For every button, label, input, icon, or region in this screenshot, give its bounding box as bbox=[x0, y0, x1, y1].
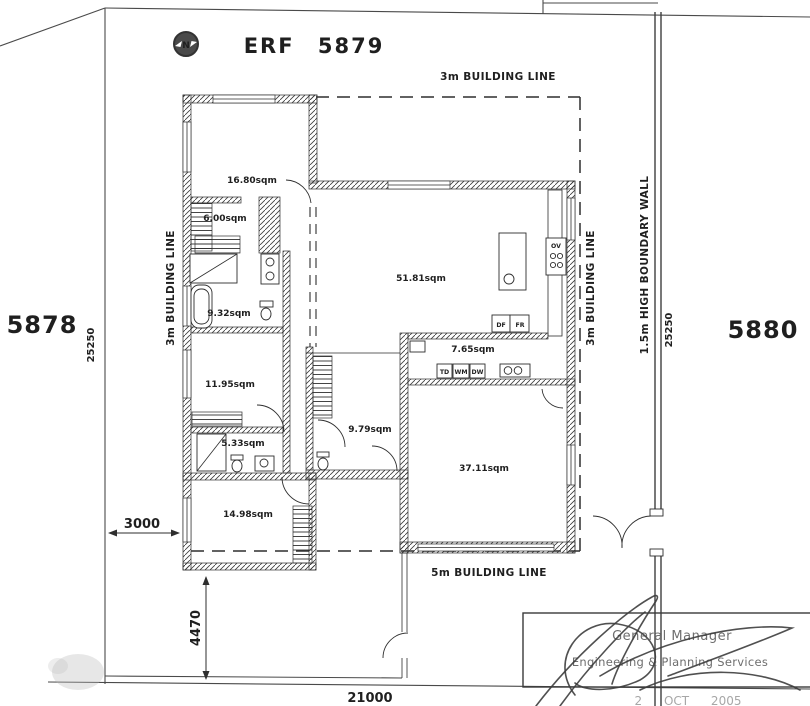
deep-freeze: DF bbox=[492, 315, 510, 332]
bottom-boundary-line bbox=[48, 682, 810, 689]
room-area-label: 37.11sqm bbox=[459, 464, 509, 474]
left-building-line-label: 3m BUILDING LINE bbox=[165, 230, 177, 346]
stamp-title: General Manager bbox=[612, 629, 732, 644]
fridge: FR bbox=[510, 315, 529, 332]
right-boundary-dimension: 25250 bbox=[664, 313, 675, 348]
left-boundary-dimension: 25250 bbox=[86, 328, 97, 363]
door-swing bbox=[372, 446, 397, 471]
front-boundary-dimension-label: 21000 bbox=[347, 691, 392, 706]
room-area-label: 51.81sqm bbox=[396, 274, 446, 284]
toilet bbox=[231, 455, 243, 472]
room-labels: 16.80sqm 6.00sqm 9.32sqm 11.95sqm 5.33sq… bbox=[203, 176, 509, 520]
vanity bbox=[261, 254, 279, 284]
oven-unit: OV bbox=[546, 238, 566, 275]
window bbox=[183, 122, 191, 172]
room-area-label: 7.65sqm bbox=[451, 345, 494, 355]
staircase bbox=[313, 356, 332, 418]
scullery-basin bbox=[410, 341, 425, 352]
tumble-dryer: TD bbox=[437, 364, 452, 378]
fridge-label: FR bbox=[516, 322, 525, 329]
gate-post bbox=[650, 509, 663, 516]
bathtub bbox=[191, 285, 212, 328]
site-plan-canvas: OV DF FR TD WM DW bbox=[0, 0, 810, 706]
bottom-inner-line bbox=[105, 676, 402, 678]
title-block: ERF 5879 N bbox=[174, 32, 384, 58]
boundary-wall-label: 1.5m HIGH BOUNDARY WALL bbox=[639, 176, 651, 355]
yard-wall bbox=[402, 553, 407, 678]
north-letter: N bbox=[182, 41, 190, 51]
dishwasher-label: DW bbox=[472, 369, 484, 376]
closet-desk bbox=[190, 254, 237, 283]
driveway-dimension-label: 4470 bbox=[189, 610, 204, 646]
pedestrian-gate bbox=[383, 633, 408, 658]
top-left-street-line bbox=[0, 8, 105, 46]
basin bbox=[255, 456, 274, 471]
setback-dimension-label: 3000 bbox=[124, 517, 160, 532]
top-boundary-line bbox=[105, 8, 810, 17]
tumble-dryer-label: TD bbox=[440, 369, 449, 376]
signature bbox=[536, 596, 800, 706]
front-building-line-label: 5m BUILDING LINE bbox=[431, 567, 547, 579]
door-swing bbox=[282, 477, 309, 504]
window bbox=[183, 350, 191, 398]
door-swing bbox=[286, 180, 311, 203]
neighbor-erf-left: 5878 bbox=[7, 311, 78, 339]
deep-freeze-label: DF bbox=[496, 322, 505, 329]
dishwasher: DW bbox=[470, 364, 485, 378]
room-area-label: 9.32sqm bbox=[207, 309, 250, 319]
door-swing bbox=[318, 420, 345, 447]
top-right-cutoff-box bbox=[543, 0, 658, 14]
oven-label: OV bbox=[551, 243, 561, 250]
garage-door bbox=[418, 544, 554, 551]
toilet bbox=[317, 452, 329, 470]
room-area-label: 14.98sqm bbox=[223, 510, 273, 520]
washing-machine-label: WM bbox=[455, 369, 468, 376]
room-area-label: 9.79sqm bbox=[348, 425, 391, 435]
toilet bbox=[260, 301, 273, 320]
window bbox=[567, 198, 575, 240]
double-sink bbox=[500, 364, 530, 377]
room-area-label: 16.80sqm bbox=[227, 176, 277, 186]
washing-machine: WM bbox=[453, 364, 469, 378]
right-building-line-label: 3m BUILDING LINE bbox=[585, 230, 597, 346]
window bbox=[567, 445, 575, 485]
garage-person-door bbox=[542, 389, 563, 408]
room-area-label: 11.95sqm bbox=[205, 380, 255, 390]
kitchen-island bbox=[499, 233, 526, 290]
neighbor-erf-right: 5880 bbox=[728, 316, 799, 344]
gate-post bbox=[650, 549, 663, 556]
driveway-gates bbox=[593, 516, 651, 548]
site-plan-page: OV DF FR TD WM DW bbox=[0, 0, 810, 706]
scan-smudge bbox=[48, 654, 104, 690]
window bbox=[388, 181, 450, 189]
room-area-label: 6.00sqm bbox=[203, 214, 246, 224]
north-arrow-icon: N bbox=[174, 32, 198, 56]
window bbox=[183, 498, 191, 542]
stamp-subtitle: Engineering & Planning Services bbox=[572, 655, 768, 669]
erf-title: ERF 5879 bbox=[244, 34, 385, 58]
stamp-date: 2 OCT 2005 bbox=[635, 694, 742, 706]
inner-building-line-dash bbox=[310, 207, 316, 347]
top-building-line-label: 3m BUILDING LINE bbox=[440, 71, 556, 83]
window bbox=[213, 95, 275, 103]
room-area-label: 5.33sqm bbox=[221, 439, 264, 449]
window bbox=[183, 286, 191, 326]
staircase bbox=[293, 506, 312, 563]
closet-shelves bbox=[195, 236, 240, 253]
bedroom-cupboard bbox=[192, 412, 242, 426]
